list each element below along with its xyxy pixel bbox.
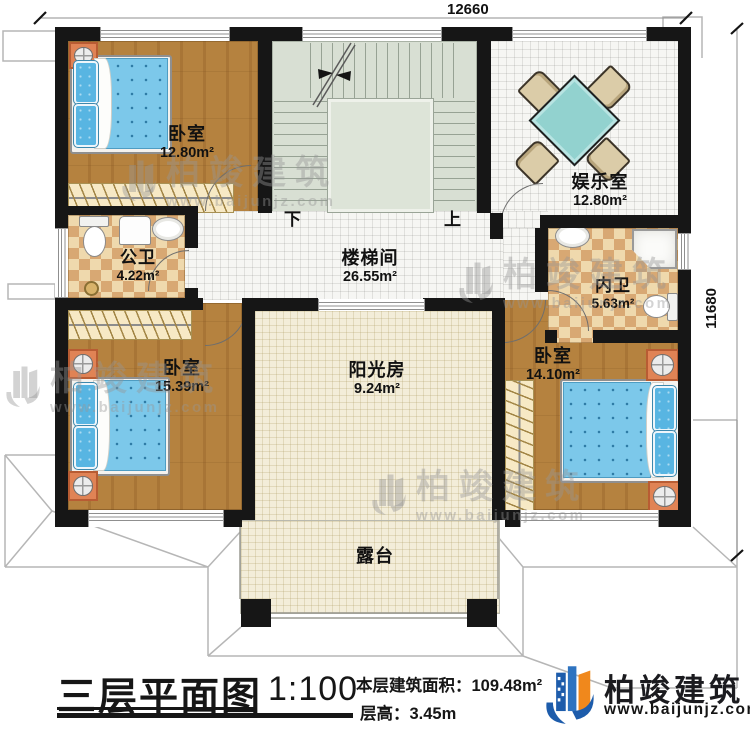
bed2-pillow [74, 383, 97, 426]
room-label-entertainment: 娱乐室 12.80m² [545, 172, 655, 209]
wall [490, 213, 503, 239]
bed2-pillow [74, 426, 97, 469]
wall [545, 330, 557, 343]
sunroom-floor [255, 311, 492, 520]
floor-plan-canvas: 卧室 12.80m² 娱乐室 12.80m² 公卫 4.22m² 楼梯间 26.… [0, 0, 750, 734]
window [100, 27, 230, 41]
terrace-pillar [241, 599, 271, 627]
brand-url: www.baijunjz.com [604, 701, 750, 719]
dimension-top: 12660 [447, 1, 489, 18]
wall [535, 228, 548, 292]
wall [185, 288, 198, 298]
room-label-bedroom3: 卧室 14.10m² [498, 346, 608, 383]
title-underline-2 [57, 713, 353, 718]
wall [440, 27, 512, 41]
bed1-pillow [74, 61, 98, 104]
room-label-sunroom: 阳光房 9.24m² [322, 360, 432, 397]
room-label-public-bath: 公卫 4.22m² [83, 248, 193, 283]
wall [55, 206, 198, 215]
wall [505, 510, 520, 527]
floor-height-text: 层高：3.45m [360, 700, 456, 724]
room-label-stairwell: 楼梯间 26.55m² [315, 248, 425, 285]
window [55, 228, 68, 298]
bed3-blanket [563, 382, 651, 478]
sliding-door [318, 299, 425, 311]
wall [477, 27, 491, 213]
room-label-bedroom2: 卧室 15.39m² [127, 358, 237, 395]
bed3-nightstand [648, 481, 681, 512]
washing-machine-icon [119, 216, 151, 245]
bed3-nightstand [646, 349, 679, 381]
dimension-right: 11680 [703, 288, 720, 329]
window [512, 27, 647, 41]
floor-drain-icon [84, 281, 99, 296]
wall [55, 298, 203, 310]
window [520, 510, 659, 527]
sink-icon [152, 217, 184, 241]
terrace-pillar [467, 599, 497, 627]
wall [245, 298, 318, 311]
stair-up-label: 上 [444, 205, 461, 230]
bed2-nightstand [68, 349, 98, 379]
stair-treads-right [432, 98, 475, 211]
bedroom2-wardrobe [68, 310, 192, 340]
terrace-floor [240, 520, 500, 614]
stair-treads-left [274, 98, 327, 211]
wall [222, 510, 242, 527]
room-label-inner-bath: 内卫 5.63m² [558, 276, 668, 311]
brand-logo-icon [540, 662, 600, 726]
bedroom3-wardrobe [505, 380, 534, 514]
window [302, 27, 442, 41]
title-underline [57, 707, 257, 710]
plan-scale: 1:100 [268, 670, 358, 709]
room-label-terrace: 露台 [320, 546, 430, 567]
bed3-pillow [653, 386, 676, 431]
window [678, 233, 691, 270]
wall [678, 27, 691, 233]
wall [185, 215, 198, 248]
wall [657, 510, 691, 527]
wall [678, 268, 691, 527]
wall [55, 27, 68, 228]
wall [258, 27, 272, 213]
stair-down-label: 下 [284, 205, 301, 230]
stair-treads-top [300, 43, 460, 98]
corridor-floor [503, 228, 535, 300]
wall [55, 296, 68, 527]
wall [492, 298, 505, 520]
wall [55, 510, 88, 527]
brand-logo-icon [2, 362, 44, 410]
wall [540, 215, 691, 228]
floor-area-text: 本层建筑面积：109.48m² [356, 672, 542, 696]
wall [242, 298, 255, 520]
bed3-pillow [653, 431, 676, 476]
window [88, 510, 224, 527]
stair-landing [327, 98, 434, 213]
bed1-pillow [74, 104, 98, 147]
bed2-nightstand [68, 471, 98, 501]
wall [593, 330, 691, 343]
room-label-bedroom1: 卧室 12.80m² [132, 124, 242, 161]
